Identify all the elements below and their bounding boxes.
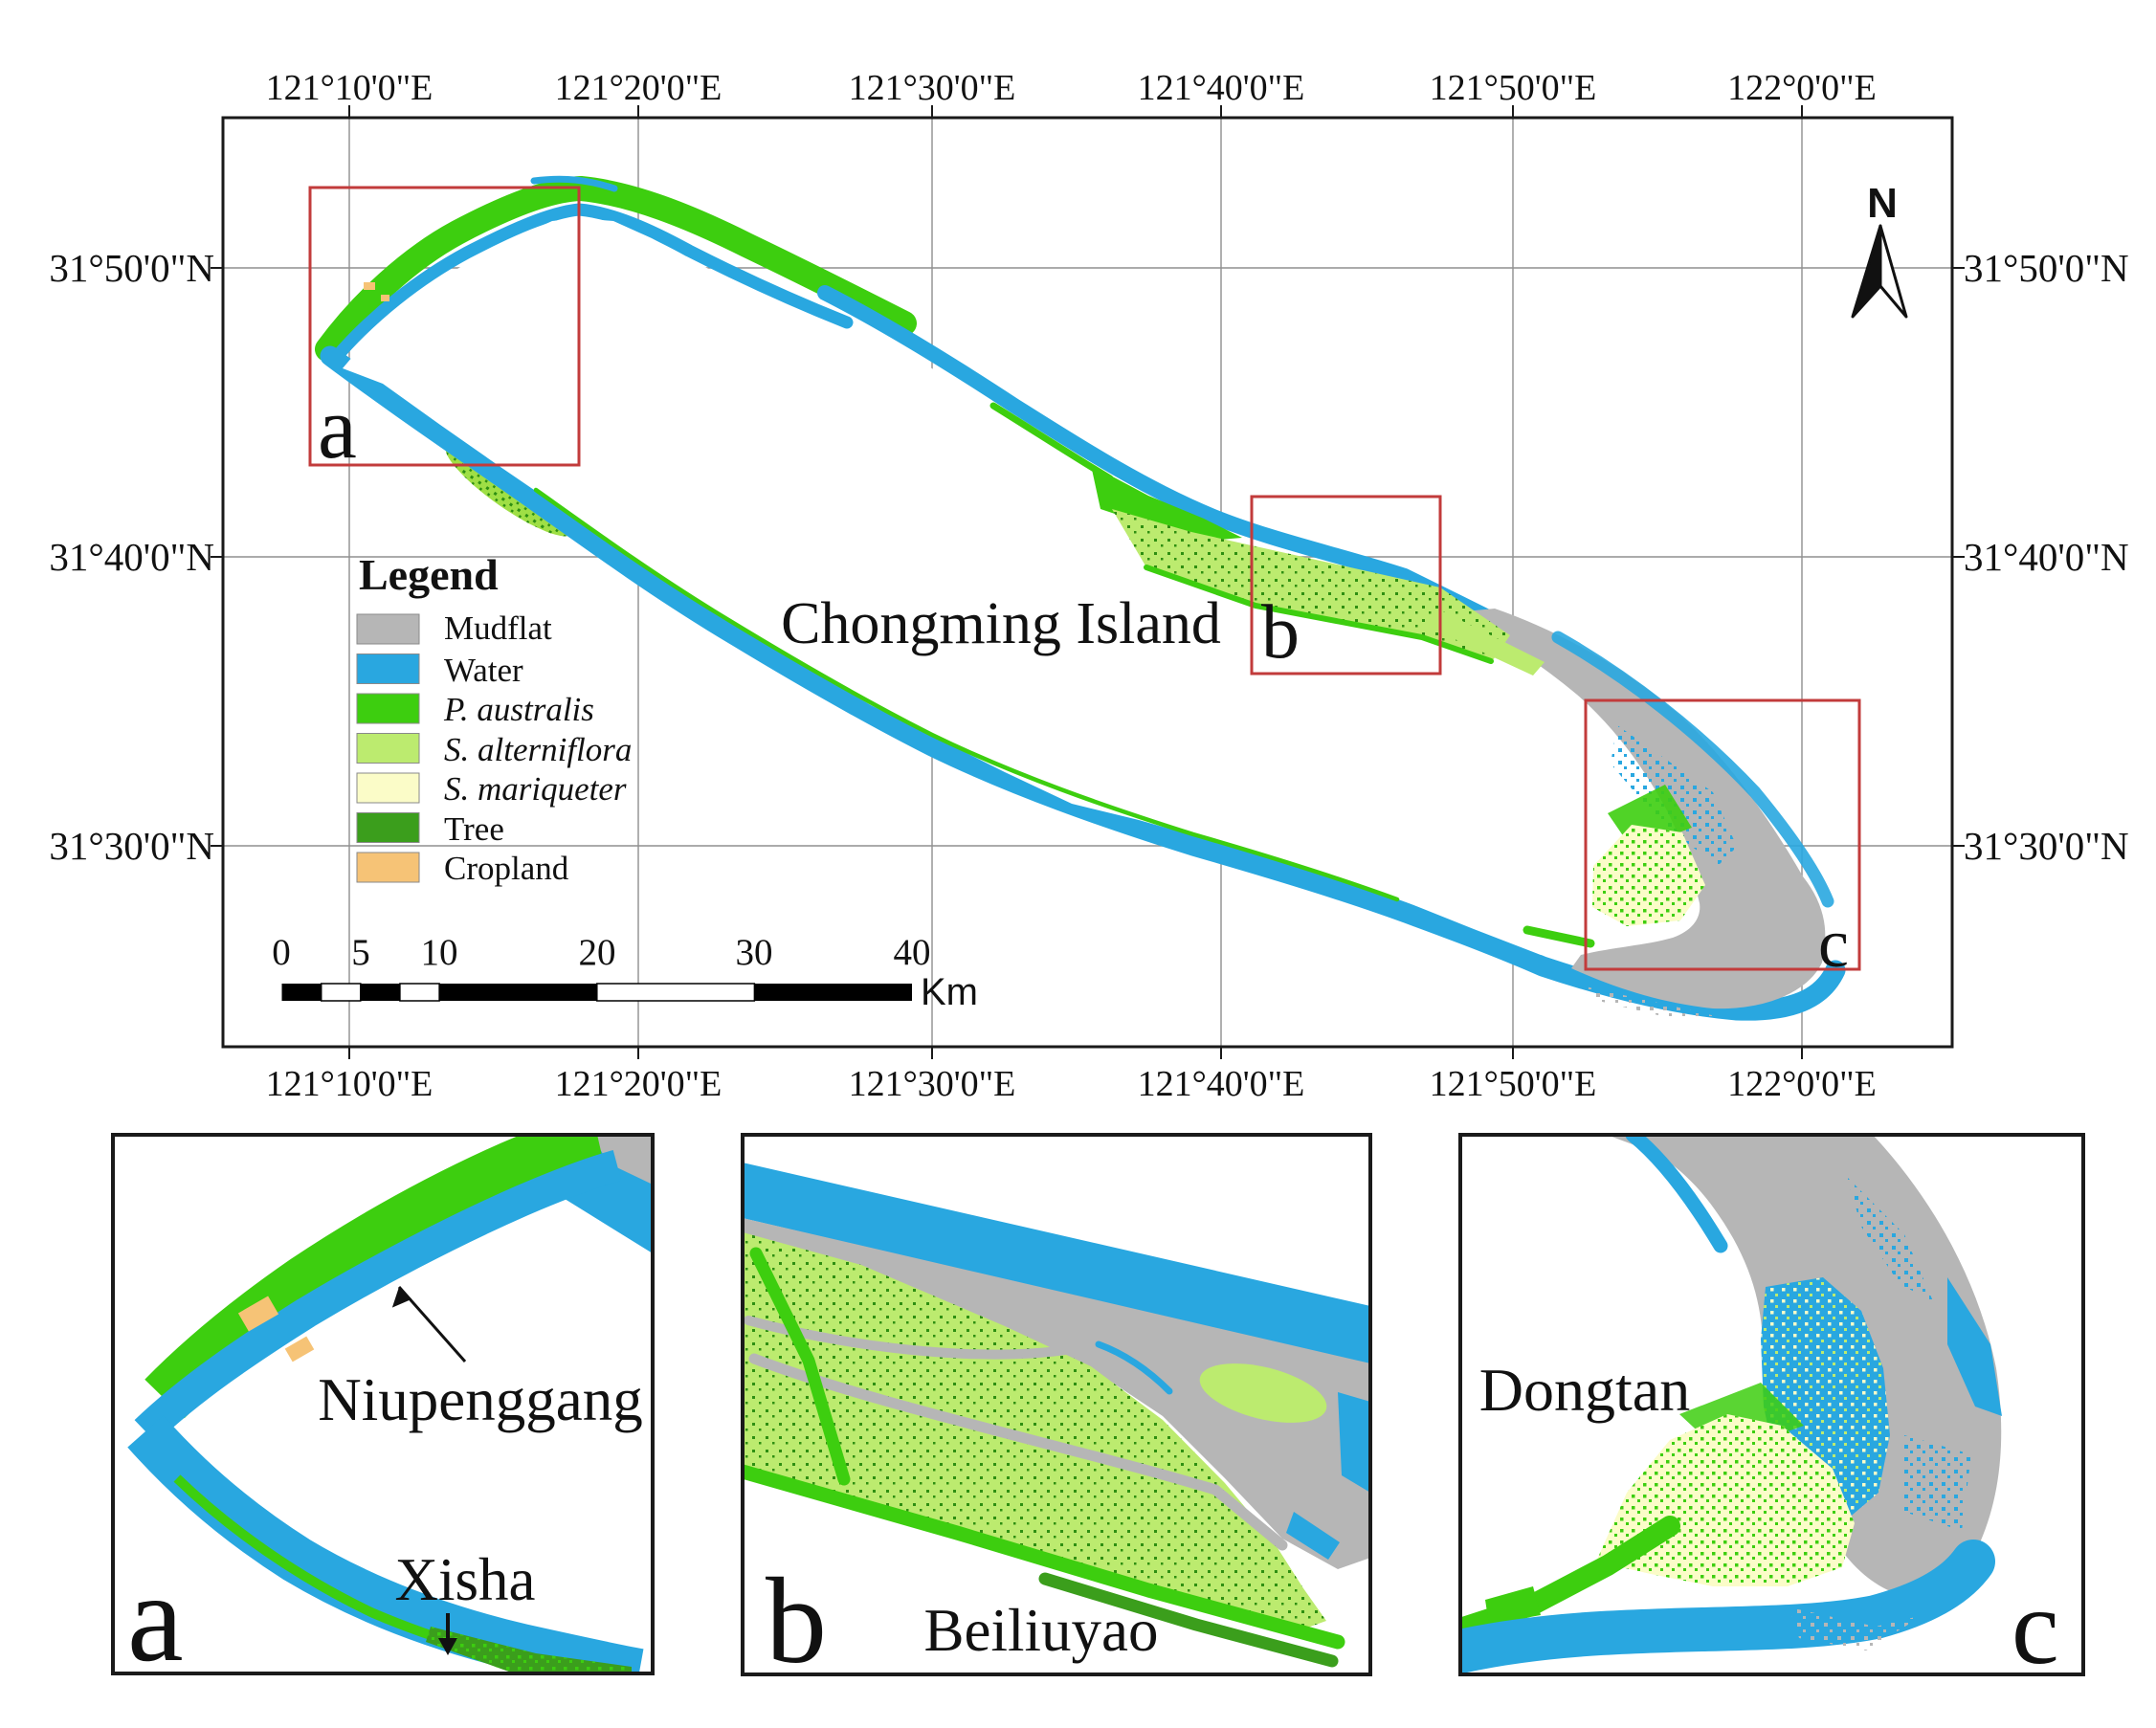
svg-text:Beiliuyao: Beiliuyao [924, 1597, 1159, 1664]
svg-text:121°10'0"E: 121°10'0"E [266, 1064, 433, 1104]
svg-text:31°40'0"N: 31°40'0"N [49, 535, 214, 579]
svg-text:Legend: Legend [359, 550, 499, 599]
svg-text:c: c [1818, 905, 1849, 982]
svg-text:31°30'0"N: 31°30'0"N [1964, 824, 2129, 868]
svg-text:31°30'0"N: 31°30'0"N [49, 824, 214, 868]
svg-text:Cropland: Cropland [444, 850, 569, 887]
svg-text:121°30'0"E: 121°30'0"E [849, 1064, 1016, 1104]
svg-text:a: a [127, 1547, 184, 1688]
svg-text:121°40'0"E: 121°40'0"E [1138, 68, 1305, 108]
svg-text:31°40'0"N: 31°40'0"N [1964, 535, 2129, 579]
svg-text:121°20'0"E: 121°20'0"E [555, 1064, 722, 1104]
svg-text:a: a [318, 379, 357, 476]
svg-text:121°10'0"E: 121°10'0"E [266, 68, 433, 108]
svg-text:122°0'0"E: 122°0'0"E [1727, 68, 1877, 108]
svg-text:Water: Water [444, 652, 523, 689]
svg-text:b: b [766, 1553, 827, 1689]
svg-text:121°50'0"E: 121°50'0"E [1430, 1064, 1597, 1104]
svg-text:5: 5 [351, 932, 370, 973]
svg-text:Niupenggang: Niupenggang [318, 1366, 642, 1433]
svg-text:Dongtan: Dongtan [1479, 1356, 1690, 1424]
svg-text:31°50'0"N: 31°50'0"N [1964, 246, 2129, 290]
svg-text:121°20'0"E: 121°20'0"E [555, 68, 722, 108]
svg-text:121°50'0"E: 121°50'0"E [1430, 68, 1597, 108]
svg-text:Km: Km [921, 971, 978, 1013]
svg-text:Chongming Island: Chongming Island [781, 591, 1221, 656]
svg-text:Tree: Tree [444, 810, 504, 848]
svg-text:0: 0 [272, 932, 291, 973]
svg-text:b: b [1261, 590, 1300, 675]
svg-text:121°40'0"E: 121°40'0"E [1138, 1064, 1305, 1104]
svg-text:20: 20 [579, 932, 616, 973]
svg-text:10: 10 [421, 932, 458, 973]
svg-text:S. mariqueter: S. mariqueter [444, 770, 627, 808]
svg-text:Mudflat: Mudflat [444, 609, 552, 647]
svg-text:N: N [1867, 180, 1898, 227]
svg-text:P. australis: P. australis [443, 691, 594, 728]
svg-text:40: 40 [894, 932, 931, 973]
svg-text:31°50'0"N: 31°50'0"N [49, 246, 214, 290]
svg-text:121°30'0"E: 121°30'0"E [849, 68, 1016, 108]
svg-text:c: c [2012, 1568, 2059, 1687]
svg-text:122°0'0"E: 122°0'0"E [1727, 1064, 1877, 1104]
svg-text:Xisha: Xisha [395, 1546, 536, 1613]
svg-text:30: 30 [736, 932, 773, 973]
svg-text:S. alterniflora: S. alterniflora [444, 731, 632, 768]
